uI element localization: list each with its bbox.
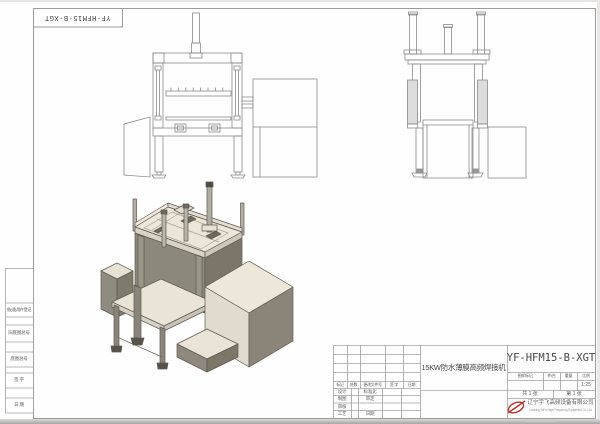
sign-draft: 制图: [333, 395, 351, 403]
sign-process: 工艺: [333, 410, 351, 418]
company-name-en: Liaoning YuFei High Frequency Equipment …: [526, 408, 595, 414]
drawing-sheet: YF-HFM15-B-XGT 借(通)用件登记 旧底图总号 底图总号 签 字 日…: [0, 0, 600, 424]
side-view: [404, 12, 526, 178]
margin-label-master-no: 底图总号: [5, 352, 33, 367]
margin-label-signature: 签 字: [5, 373, 33, 388]
company-logo-icon: [507, 400, 525, 415]
margin-label-date: 日 期: [5, 398, 33, 413]
sheet-total: 共 1 张: [507, 390, 553, 398]
isometric-view: [101, 182, 293, 372]
revision-header-date: 日期: [403, 381, 420, 389]
margin-label-borrowed-parts: 借(通)用件登记: [5, 303, 33, 317]
machine-title: 15KW防水薄膜高频焊接机: [420, 345, 507, 390]
sheet-index: 第 1 张: [553, 390, 595, 398]
sign-date: 日期: [358, 410, 382, 418]
page-bottom-smudge: [526, 419, 556, 422]
sign-approve: 审定: [358, 395, 382, 403]
page-edge-bottom: [0, 419, 600, 424]
margin-label-old-master: 旧底图总号: [5, 325, 33, 342]
front-view: [124, 13, 317, 178]
page-edge-top: [0, 0, 600, 2]
info-header-mark: 图样标记: [507, 372, 543, 380]
drawing-number: YF-HFM15-B-XGT: [507, 345, 595, 372]
info-header-scale: 比例: [577, 372, 595, 380]
info-header-weight: 重量: [560, 372, 577, 380]
info-header-per-unit: 件/台: [543, 372, 560, 380]
drawing-number-inverted: YF-HFM15-B-XGT: [33, 8, 122, 27]
scale-value: 1:25: [577, 380, 595, 390]
revision-header-sign: 签 字: [385, 381, 403, 389]
